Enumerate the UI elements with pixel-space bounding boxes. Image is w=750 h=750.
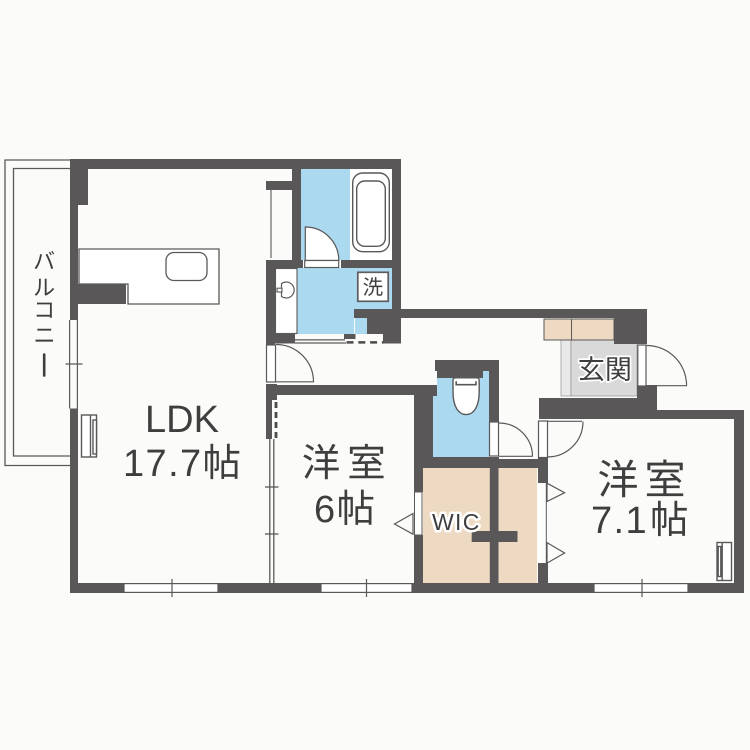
svg-text:7.1: 7.1 [591, 500, 648, 542]
svg-text:17.7: 17.7 [123, 443, 203, 485]
svg-text:6: 6 [314, 489, 335, 531]
svg-text:LDK: LDK [145, 399, 219, 441]
svg-text:WIC: WIC [432, 509, 481, 535]
